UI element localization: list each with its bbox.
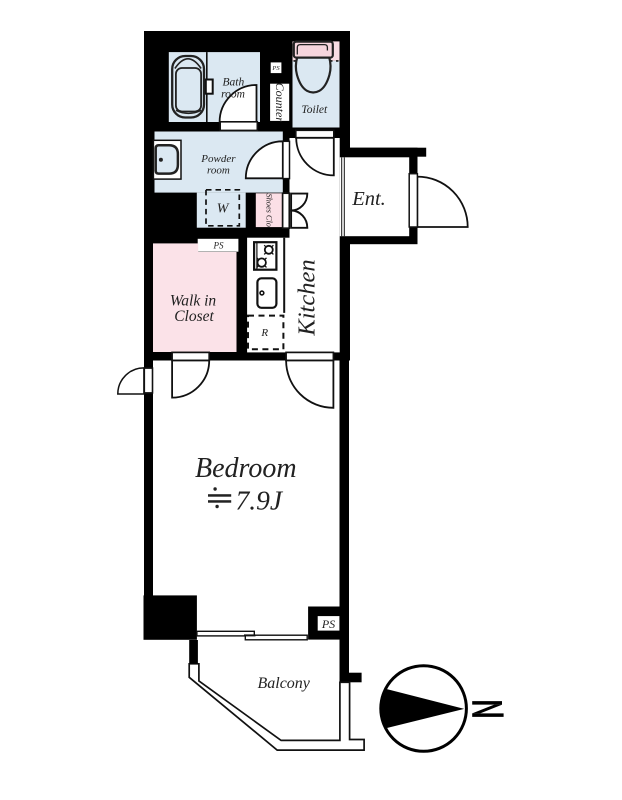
svg-text:Balcony: Balcony — [257, 675, 310, 692]
svg-text:Shoes Clo: Shoes Clo — [265, 193, 274, 226]
svg-text:PS: PS — [213, 240, 224, 250]
svg-text:room: room — [207, 164, 230, 176]
svg-text:PS: PS — [271, 65, 280, 72]
svg-text:Kitchen: Kitchen — [294, 259, 321, 336]
svg-text:Powder: Powder — [200, 153, 236, 165]
svg-text:Counter: Counter — [273, 83, 287, 123]
svg-text:Closet: Closet — [174, 308, 214, 325]
svg-text:R: R — [260, 327, 268, 339]
svg-text:Toilet: Toilet — [301, 104, 328, 116]
svg-text:Bath: Bath — [223, 77, 245, 89]
svg-text:Walk in: Walk in — [170, 292, 217, 309]
svg-text:Ent.: Ent. — [351, 188, 386, 210]
svg-text:room: room — [221, 89, 245, 101]
svg-text:PS: PS — [321, 617, 335, 631]
svg-text:Bedroom: Bedroom — [195, 453, 297, 484]
svg-text:W: W — [217, 201, 230, 216]
svg-text:7.9J: 7.9J — [236, 484, 284, 515]
